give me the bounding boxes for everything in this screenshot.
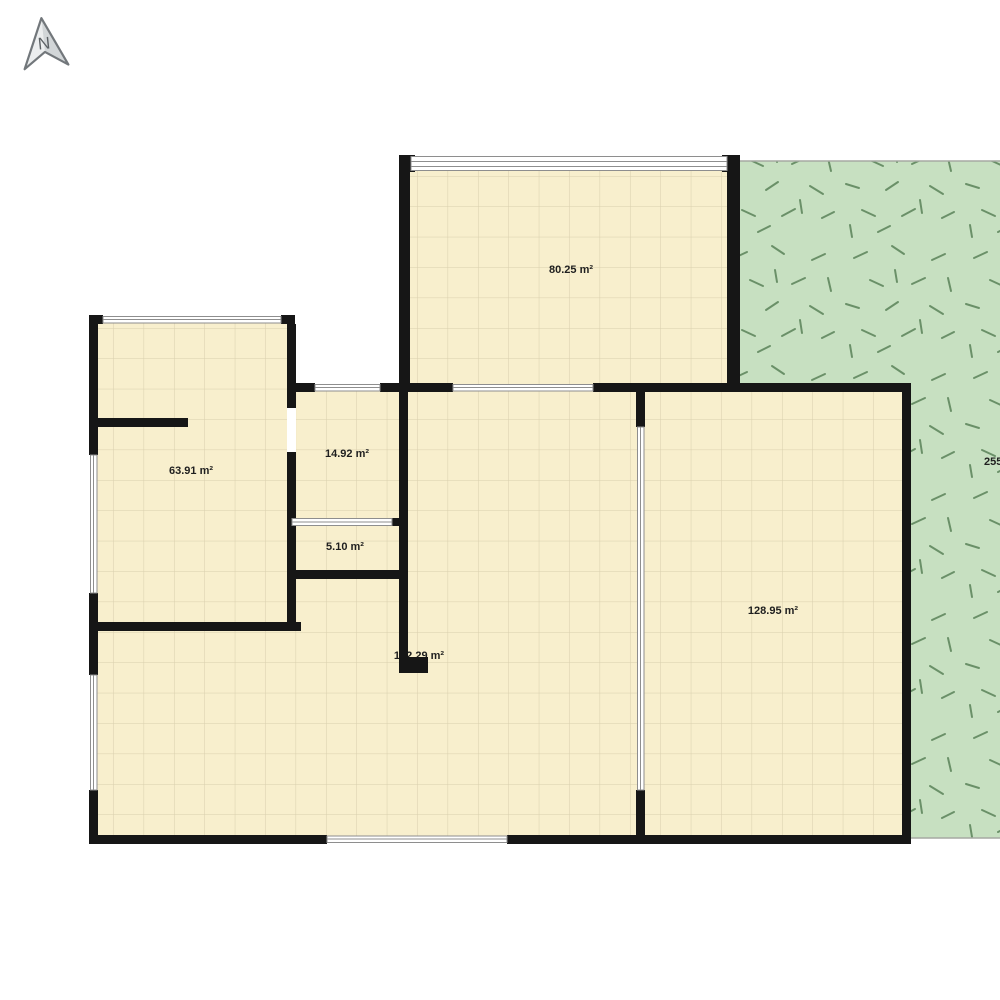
floor-plan-canvas: 80.25 m² 63.91 m² 14.92 m² 5.10 m² 182.2…	[0, 0, 1000, 1000]
room-area-label-small: 14.92 m²	[325, 448, 369, 460]
window	[453, 385, 593, 392]
floorplan-page: 80.25 m² 63.91 m² 14.92 m² 5.10 m² 182.2…	[0, 0, 1000, 1000]
garden-area-label-clipped: 255	[984, 456, 1000, 468]
compass-label: N	[37, 33, 51, 53]
room-area-label-tiny: 5.10 m²	[326, 541, 364, 553]
window	[91, 675, 98, 790]
room-area-label-top: 80.25 m²	[549, 264, 593, 276]
room-area-label-right: 128.95 m²	[748, 605, 798, 617]
window	[327, 836, 507, 843]
window	[103, 317, 281, 324]
window	[411, 157, 727, 171]
window	[638, 427, 645, 790]
window	[91, 455, 98, 593]
room-area-label-left: 63.91 m²	[169, 465, 213, 477]
door-opening	[287, 408, 296, 452]
window	[292, 519, 392, 526]
window	[315, 385, 380, 392]
compass-north-indicator: N	[20, 16, 69, 69]
